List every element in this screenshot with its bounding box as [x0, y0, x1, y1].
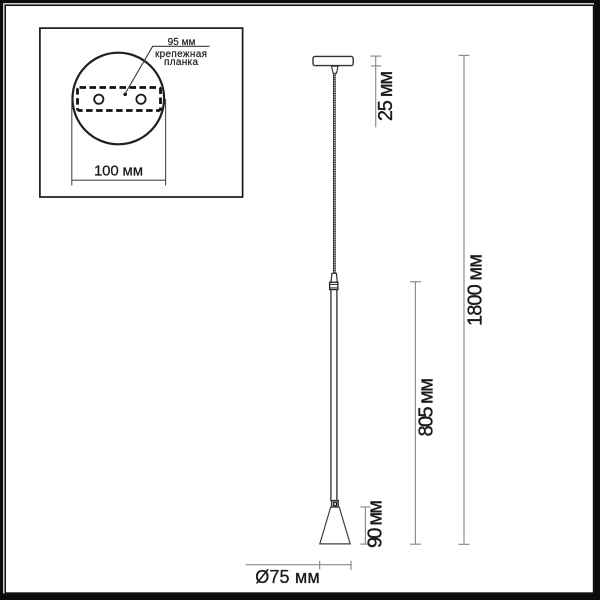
- svg-text:1800 мм: 1800 мм: [464, 254, 486, 326]
- svg-text:90 мм: 90 мм: [365, 500, 387, 548]
- svg-text:805 мм: 805 мм: [415, 378, 437, 437]
- svg-text:95 мм: 95 мм: [168, 37, 196, 48]
- svg-text:100 мм: 100 мм: [94, 163, 143, 180]
- svg-text:25 мм: 25 мм: [375, 71, 397, 121]
- svg-text:планка: планка: [164, 57, 198, 68]
- svg-text:Ø75 мм: Ø75 мм: [255, 567, 320, 587]
